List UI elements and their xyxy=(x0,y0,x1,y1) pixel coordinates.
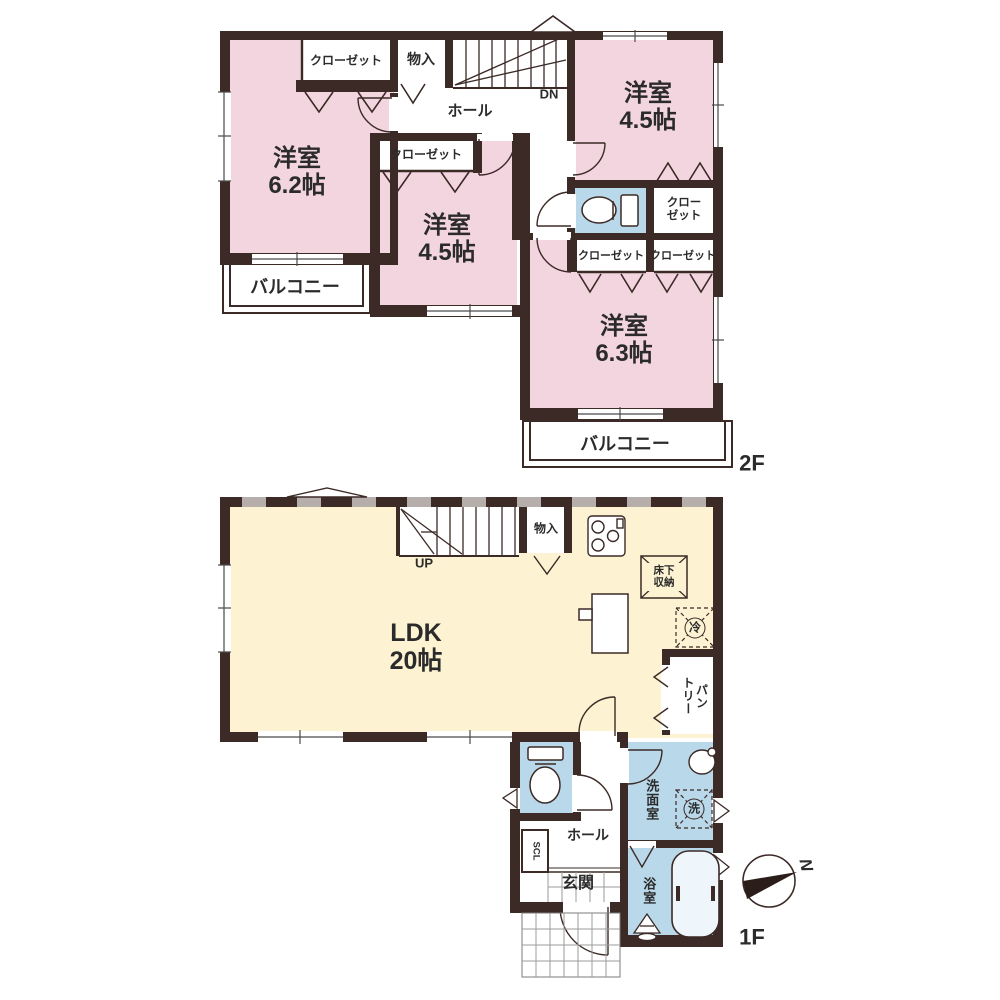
room-center-label: 洋室 4.5帖 xyxy=(418,213,475,267)
closet-northeast-line2: ゼット xyxy=(667,210,702,223)
storage-2f-label: 物入 xyxy=(407,52,435,68)
pantry-label: パン トリー xyxy=(681,677,708,716)
balcony-south-label: バルコニー xyxy=(580,434,670,454)
laundry-label: 洗 xyxy=(688,802,700,815)
room-northeast-area: 4.5帖 xyxy=(619,108,676,135)
top-wall-hatch-1f xyxy=(242,497,706,507)
stairs-dn-label: DN xyxy=(540,88,559,103)
corridor-2f-fill xyxy=(530,90,567,240)
toilet-icon-1f xyxy=(528,747,563,803)
room-northeast-label: 洋室 4.5帖 xyxy=(619,81,676,135)
balcony-west-label: バルコニー xyxy=(250,277,340,297)
roof-vent-mark-2f xyxy=(531,16,575,32)
washroom-label: 洗面室 xyxy=(644,779,659,821)
shoe-closet-label: SCL xyxy=(530,842,541,861)
room-west-area: 6.2帖 xyxy=(268,173,325,200)
stairs-2f xyxy=(453,34,567,88)
porch-tiles xyxy=(522,913,620,977)
eave-mark-1f xyxy=(287,488,367,497)
floorplan-canvas: クローゼット 物入 DN ホール 洋室 6.2帖 クローゼット 洋室 4.5帖 … xyxy=(0,0,1000,1000)
room-northeast-name: 洋室 xyxy=(619,81,676,108)
room-southeast-area: 6.3帖 xyxy=(595,341,652,368)
ldk-label: LDK 20帖 xyxy=(390,619,443,675)
room-west-label: 洋室 6.2帖 xyxy=(268,146,325,200)
room-southeast-name: 洋室 xyxy=(595,314,652,341)
bathroom-label: 浴室 xyxy=(641,877,656,905)
hall-2f-label: ホール xyxy=(447,104,492,121)
floor1-label: 1F xyxy=(739,926,765,951)
stove-icon xyxy=(588,516,625,556)
entrance-label: 玄関 xyxy=(562,875,594,893)
stairs-up-label: UP xyxy=(415,557,433,572)
hall-1f-label: ホール xyxy=(567,828,609,844)
floorplan-drawing xyxy=(0,0,1000,1000)
underfloor-storage-label: 床下 収納 xyxy=(654,565,675,589)
underfloor-line2: 収納 xyxy=(654,577,675,589)
room-center-area: 4.5帖 xyxy=(418,240,475,267)
closet-northeast-label: クロー ゼット xyxy=(667,197,702,223)
refrigerator-label: 冷 xyxy=(689,621,701,634)
underfloor-line1: 床下 xyxy=(654,565,675,577)
room-west-name: 洋室 xyxy=(268,146,325,173)
compass xyxy=(743,855,797,907)
floor2-label: 2F xyxy=(739,452,765,477)
room-center-name: 洋室 xyxy=(418,213,475,240)
pantry-line1: パン xyxy=(694,677,707,716)
ldk-area: 20帖 xyxy=(390,647,443,675)
room-southeast-label: 洋室 6.3帖 xyxy=(595,314,652,368)
closet-center-label: クローゼット xyxy=(390,148,462,161)
closet-west-label: クローゼット xyxy=(310,54,382,67)
closet-se-left-label: クローゼット xyxy=(578,250,644,262)
ldk-name: LDK xyxy=(390,619,443,647)
pantry-line2: トリー xyxy=(681,677,694,716)
stairs-1f xyxy=(396,505,519,556)
closet-northeast-line1: クロー xyxy=(667,197,702,210)
closet-se-right-label: クローゼット xyxy=(650,250,716,262)
storage-1f-label: 物入 xyxy=(534,522,558,535)
bathtub xyxy=(672,851,719,937)
